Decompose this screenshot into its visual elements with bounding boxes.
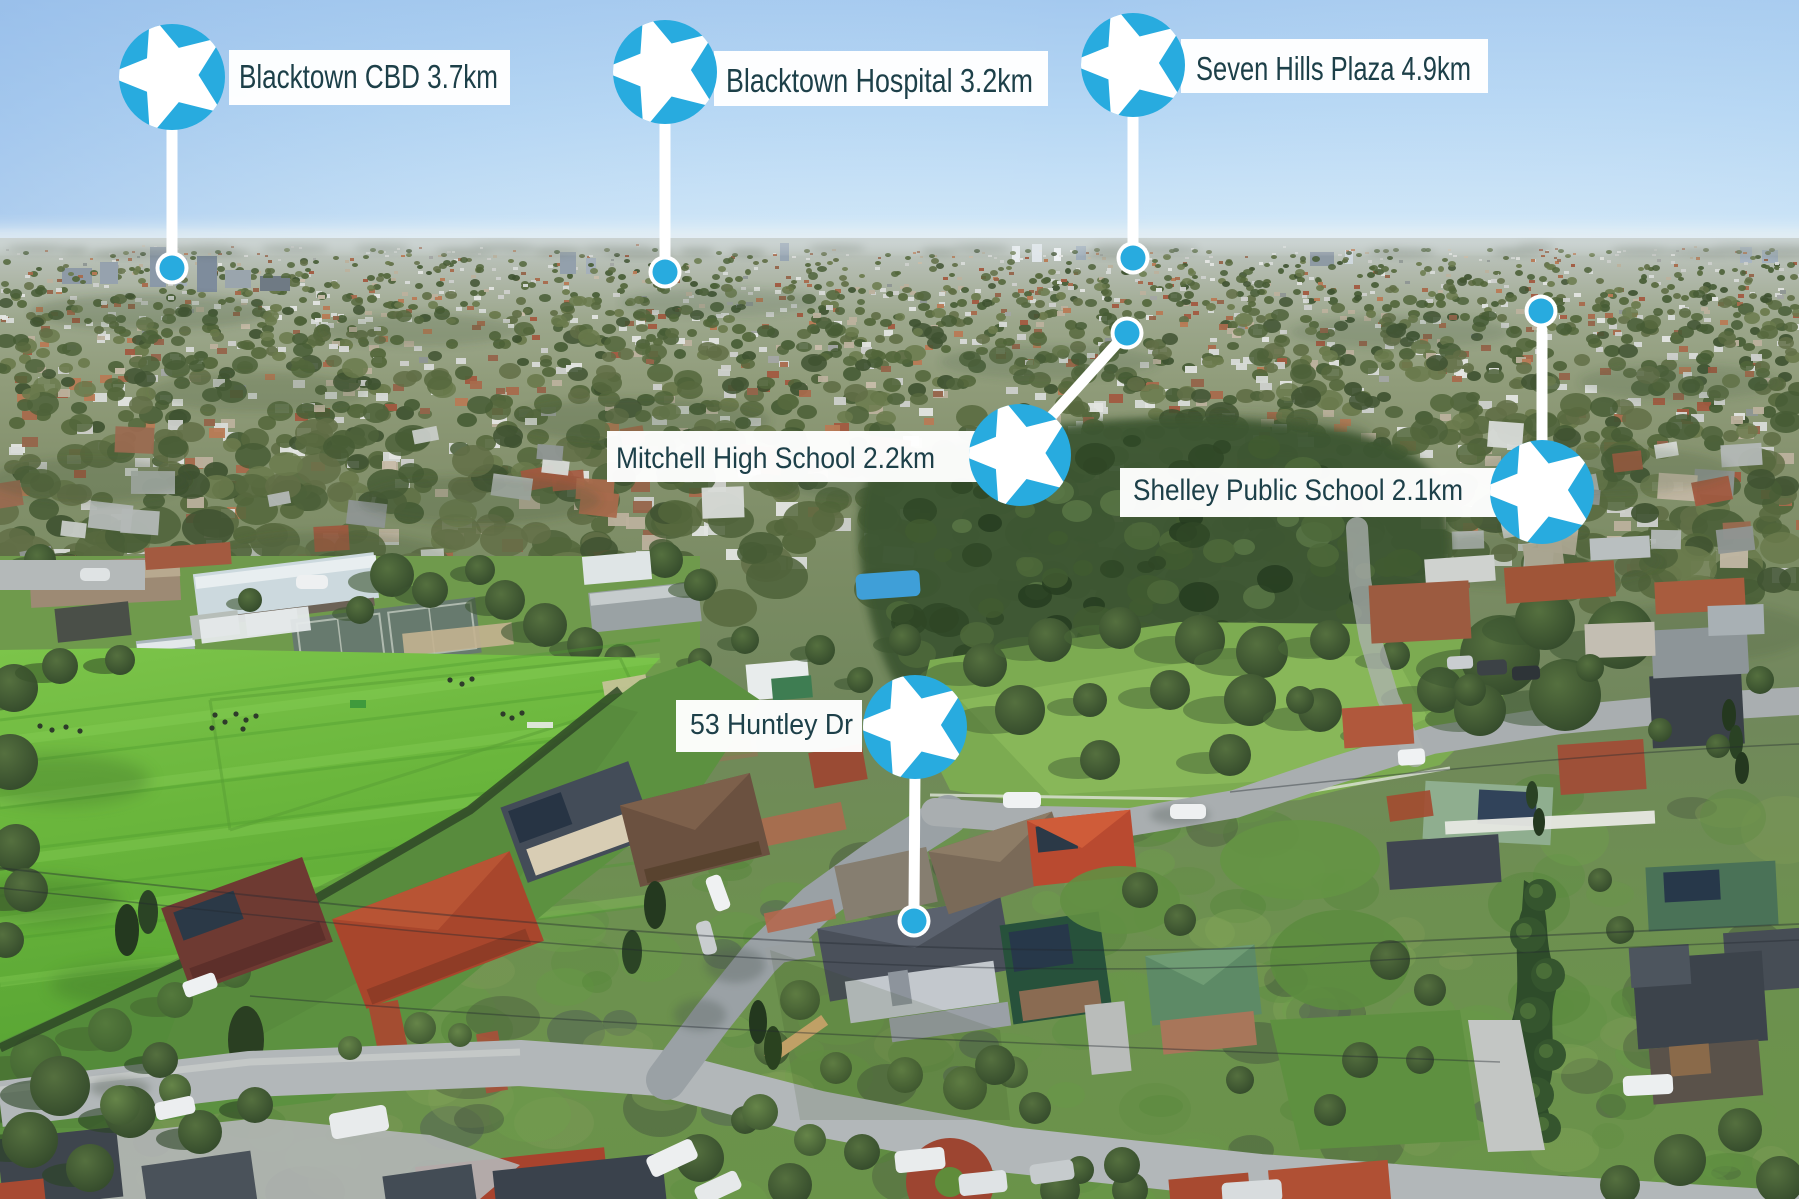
svg-text:Seven Hills Plaza 4.9km: Seven Hills Plaza 4.9km — [1196, 51, 1471, 88]
svg-text:Blacktown Hospital 3.2km: Blacktown Hospital 3.2km — [726, 63, 1033, 100]
svg-text:53 Huntley Dr: 53 Huntley Dr — [690, 709, 853, 741]
svg-text:Shelley Public School 2.1km: Shelley Public School 2.1km — [1133, 474, 1463, 507]
svg-text:Blacktown CBD 3.7km: Blacktown CBD 3.7km — [239, 59, 498, 96]
svg-text:Mitchell High School 2.2km: Mitchell High School 2.2km — [616, 442, 935, 475]
